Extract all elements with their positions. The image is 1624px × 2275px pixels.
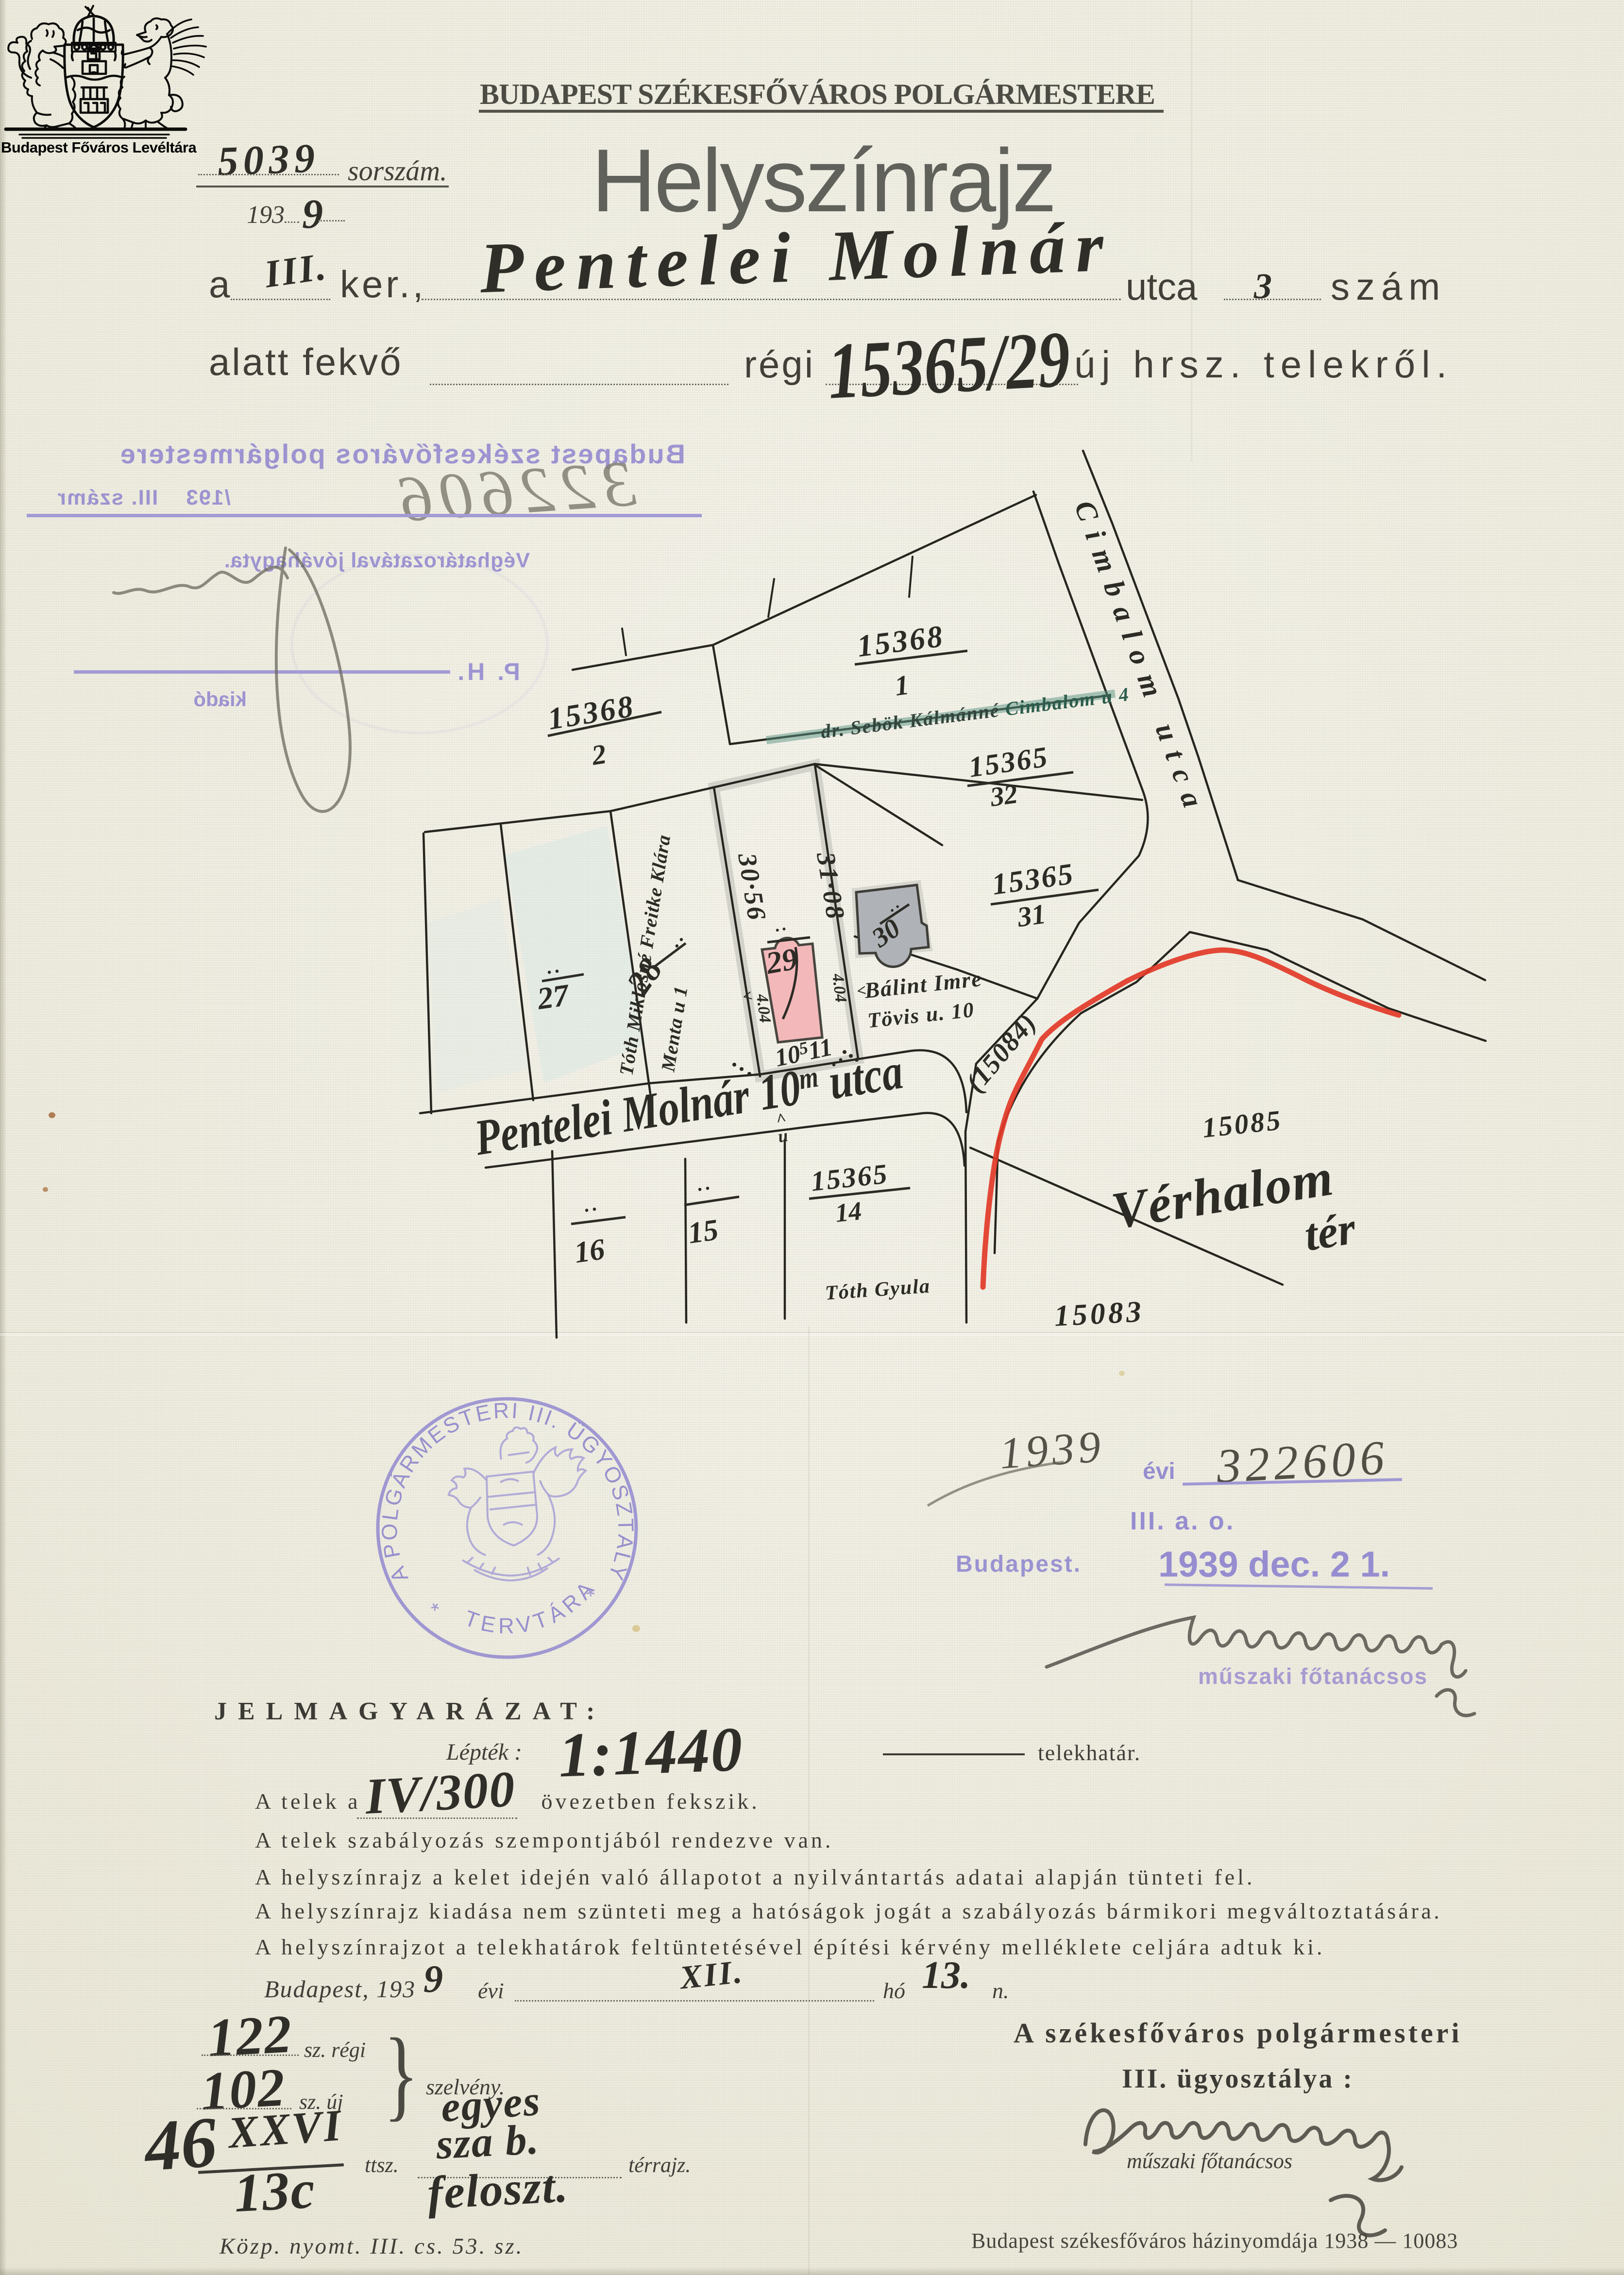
svg-text:tér: tér	[1301, 1203, 1360, 1260]
svg-text:Menta u 1: Menta u 1	[657, 985, 692, 1074]
svg-text:*: *	[422, 1598, 444, 1622]
svg-text:Pentelei Molnár 10m utca: Pentelei Molnár 10m utca	[471, 1043, 907, 1166]
svg-text:15: 15	[686, 1213, 720, 1250]
svg-text:..: ..	[663, 925, 690, 951]
svg-text:32: 32	[988, 779, 1019, 813]
svg-text:1: 1	[893, 669, 911, 702]
svg-text:31: 31	[1015, 898, 1048, 933]
svg-text:A POLGÁRMESTERI III. ÜGYOSZTÁL: A POLGÁRMESTERI III. ÜGYOSZTÁLY	[377, 1398, 639, 1586]
svg-text:Bálint Imre: Bálint Imre	[863, 966, 983, 1003]
svg-text:dr. Sebök Kálmánné Cimbalom u: dr. Sebök Kálmánné Cimbalom u 4	[820, 683, 1131, 743]
svg-text:31·08: 31·08	[811, 850, 851, 923]
svg-text:15368: 15368	[855, 618, 946, 663]
svg-text:14: 14	[834, 1196, 863, 1228]
svg-text:..: ..	[773, 914, 790, 935]
svg-text:29: 29	[763, 941, 800, 981]
svg-text:TERVTÁRA: TERVTÁRA	[461, 1574, 601, 1638]
svg-text:..: ..	[696, 1171, 714, 1195]
svg-text:..: ..	[583, 1192, 601, 1216]
svg-text:27: 27	[535, 977, 572, 1016]
svg-text:Cimbalom utca: Cimbalom utca	[1068, 496, 1213, 822]
svg-text:4.04: 4.04	[829, 972, 850, 1003]
svg-text:15083: 15083	[1053, 1295, 1145, 1333]
svg-text:..: ..	[545, 954, 564, 978]
svg-text:16: 16	[572, 1233, 607, 1270]
svg-text:Tóth Gyula: Tóth Gyula	[824, 1275, 931, 1305]
svg-text:15085: 15085	[1201, 1104, 1284, 1144]
svg-text:Tövis u. 10: Tövis u. 10	[866, 998, 976, 1033]
svg-text:4.04: 4.04	[753, 992, 774, 1024]
